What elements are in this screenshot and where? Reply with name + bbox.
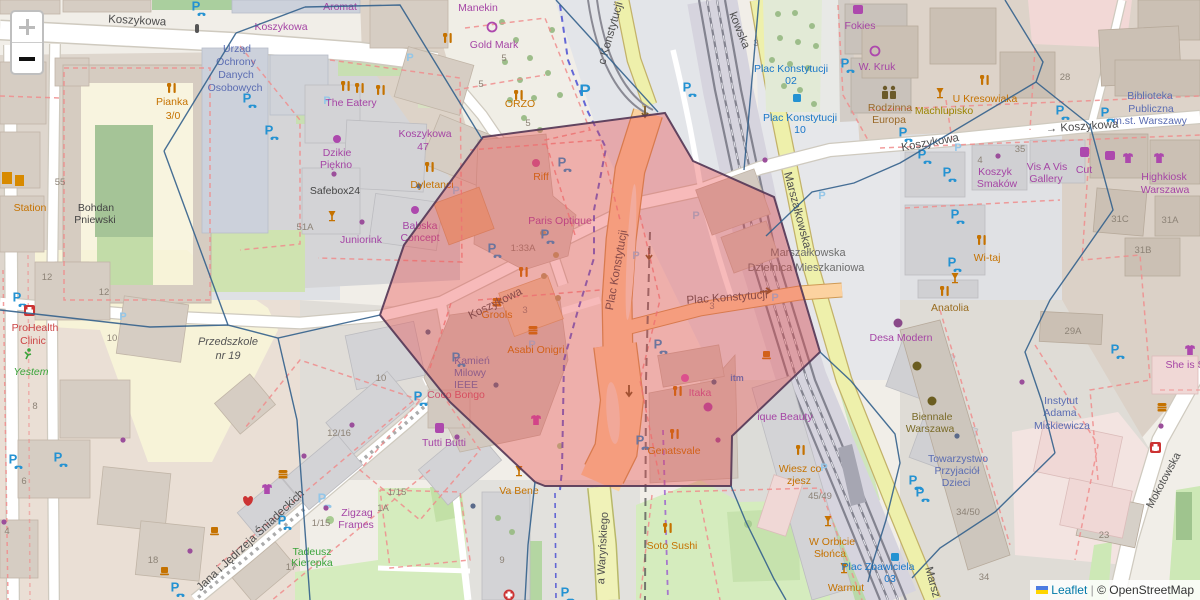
svg-text:4: 4 <box>977 155 982 166</box>
svg-text:zjesz: zjesz <box>787 475 811 487</box>
svg-text:Instytut: Instytut <box>1044 395 1078 407</box>
svg-text:Anatolia: Anatolia <box>931 302 969 314</box>
svg-text:Publiczna: Publiczna <box>1128 103 1174 115</box>
svg-text:29A: 29A <box>1065 326 1083 337</box>
svg-text:Adama: Adama <box>1043 407 1076 419</box>
svg-text:Mickiewicza: Mickiewicza <box>1034 420 1090 432</box>
svg-text:Pniewski: Pniewski <box>74 214 115 226</box>
svg-text:8: 8 <box>32 401 37 412</box>
svg-text:ProHealth: ProHealth <box>12 322 59 334</box>
svg-text:Wi-taj: Wi-taj <box>974 252 1001 264</box>
svg-text:5: 5 <box>525 118 530 129</box>
svg-text:Desa Modern: Desa Modern <box>869 332 932 344</box>
svg-text:Pianka: Pianka <box>156 96 188 108</box>
svg-text:12: 12 <box>99 287 110 298</box>
svg-text:28: 28 <box>1060 72 1071 83</box>
svg-text:Soto Sushi: Soto Sushi <box>647 540 698 552</box>
svg-text:51A: 51A <box>297 222 315 233</box>
svg-text:Urząd: Urząd <box>223 43 251 55</box>
svg-text:31C: 31C <box>1111 214 1129 225</box>
svg-text:Juniorink: Juniorink <box>340 234 383 246</box>
svg-text:5: 5 <box>501 53 506 64</box>
svg-text:6: 6 <box>21 476 26 487</box>
svg-text:m.st. Warszawy: m.st. Warszawy <box>1113 115 1187 127</box>
svg-text:Słońca: Słońca <box>814 548 846 560</box>
svg-text:Przedszkole: Przedszkole <box>198 336 258 348</box>
svg-text:1A: 1A <box>377 503 389 514</box>
svg-text:Danych: Danych <box>218 69 254 81</box>
svg-text:55: 55 <box>55 177 66 188</box>
svg-text:Wiesz co: Wiesz co <box>779 463 822 475</box>
svg-text:ique Beauty: ique Beauty <box>757 411 813 423</box>
svg-text:Osobowych: Osobowych <box>208 82 263 94</box>
svg-text:Rodzinna: Rodzinna <box>868 102 913 114</box>
svg-text:Yestem: Yestem <box>13 366 48 378</box>
svg-text:1/15: 1/15 <box>388 487 407 498</box>
svg-text:Vis A Vis: Vis A Vis <box>1027 161 1067 173</box>
svg-text:nr 19: nr 19 <box>215 350 240 362</box>
svg-text:Kierepka: Kierepka <box>291 557 333 569</box>
svg-text:10: 10 <box>107 333 118 344</box>
svg-text:Dzieci: Dzieci <box>942 477 971 489</box>
svg-text:Station: Station <box>14 202 47 214</box>
svg-text:12: 12 <box>42 272 53 283</box>
svg-text:35: 35 <box>1015 144 1026 155</box>
svg-text:10: 10 <box>794 124 806 136</box>
svg-text:Plac Zbawiciela: Plac Zbawiciela <box>842 561 915 573</box>
svg-text:34/50: 34/50 <box>956 507 980 518</box>
svg-text:Gold Mark: Gold Mark <box>470 39 519 51</box>
svg-text:03: 03 <box>884 573 896 585</box>
svg-text:Ochrony: Ochrony <box>216 56 256 68</box>
svg-text:3/0: 3/0 <box>166 110 181 122</box>
svg-text:W Orbicie: W Orbicie <box>809 536 855 548</box>
svg-text:Warszawa: Warszawa <box>906 423 955 435</box>
svg-text:23: 23 <box>1099 530 1110 541</box>
svg-text:Biblioteka: Biblioteka <box>1127 90 1173 102</box>
svg-text:Tutti Butti: Tutti Butti <box>422 437 466 449</box>
svg-text:Zigzag: Zigzag <box>341 507 373 519</box>
svg-text:1/15: 1/15 <box>312 518 331 529</box>
svg-text:9: 9 <box>499 555 504 566</box>
svg-text:Manekin: Manekin <box>458 2 498 14</box>
svg-text:Plac Konstytucji: Plac Konstytucji <box>763 112 837 124</box>
svg-text:45/49: 45/49 <box>808 491 832 502</box>
svg-text:Safebox24: Safebox24 <box>310 185 360 197</box>
svg-text:34: 34 <box>979 572 990 583</box>
svg-text:Plac Konstytucji: Plac Konstytucji <box>754 63 828 75</box>
svg-text:Cut: Cut <box>1076 164 1092 176</box>
svg-text:Towarzystwo: Towarzystwo <box>928 453 988 465</box>
svg-text:18: 18 <box>148 555 159 566</box>
svg-text:Piękno: Piękno <box>320 159 352 171</box>
svg-text:Koszykowa: Koszykowa <box>398 128 451 140</box>
svg-text:12/16: 12/16 <box>327 428 351 439</box>
svg-text:Europa: Europa <box>872 114 906 126</box>
svg-text:10: 10 <box>376 373 387 384</box>
svg-text:ORZO: ORZO <box>505 98 535 110</box>
svg-text:Warmut: Warmut <box>828 582 864 594</box>
svg-text:Przyjaciół: Przyjaciół <box>935 465 981 477</box>
svg-text:Dzikie: Dzikie <box>323 147 352 159</box>
svg-text:31A: 31A <box>1162 215 1180 226</box>
svg-text:17: 17 <box>286 562 297 573</box>
svg-text:Smaków: Smaków <box>977 178 1018 190</box>
svg-text:The Eatery: The Eatery <box>325 97 377 109</box>
svg-text:Biennale: Biennale <box>912 411 953 423</box>
svg-text:Bohdan: Bohdan <box>78 202 114 214</box>
svg-text:Gallery: Gallery <box>1029 173 1063 185</box>
svg-text:Clinic: Clinic <box>20 335 46 347</box>
svg-text:Koszyk: Koszyk <box>978 166 1013 178</box>
svg-text:02: 02 <box>785 75 797 87</box>
svg-text:Warszawa: Warszawa <box>1141 184 1190 196</box>
svg-text:W. Kruk: W. Kruk <box>859 61 897 73</box>
svg-text:31B: 31B <box>1135 245 1152 256</box>
svg-text:Highkiosk: Highkiosk <box>1141 171 1187 183</box>
svg-text:Frames: Frames <box>338 519 374 531</box>
svg-text:She is S: She is S <box>1165 359 1200 371</box>
svg-text:5: 5 <box>478 79 483 90</box>
svg-text:4: 4 <box>4 526 9 537</box>
svg-text:Machlupisko: Machlupisko <box>915 105 974 117</box>
svg-text:Fokies: Fokies <box>845 20 876 32</box>
svg-text:47: 47 <box>417 141 429 153</box>
